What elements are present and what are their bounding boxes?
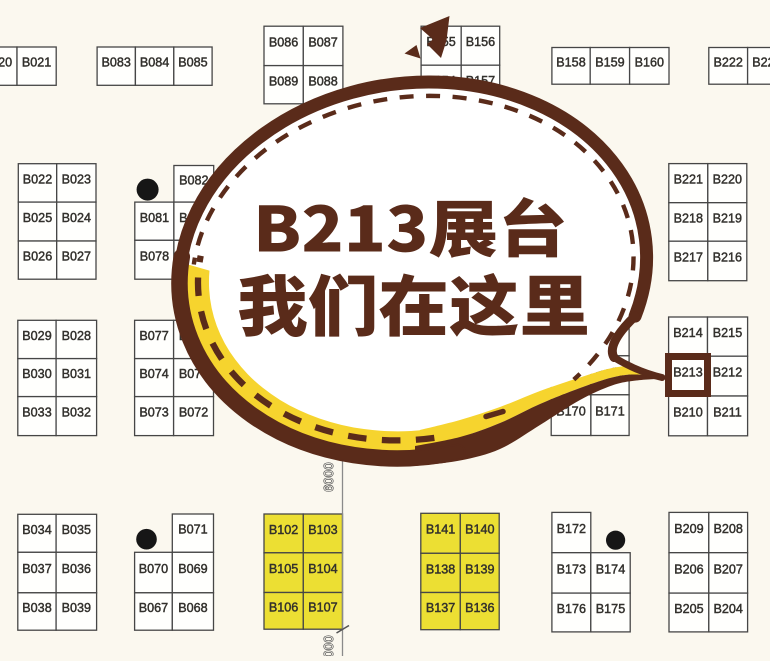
svg-text:B204: B204 — [713, 602, 742, 616]
svg-text:B175: B175 — [596, 602, 625, 616]
svg-text:B025: B025 — [23, 211, 52, 225]
svg-text:B023: B023 — [62, 173, 91, 187]
svg-text:B138: B138 — [426, 562, 455, 576]
svg-text:B209: B209 — [674, 522, 703, 536]
svg-text:B089: B089 — [269, 74, 298, 88]
svg-text:B088: B088 — [308, 74, 337, 88]
svg-text:B083: B083 — [101, 56, 130, 70]
svg-text:B020: B020 — [0, 56, 12, 70]
svg-text:B140: B140 — [465, 523, 494, 537]
svg-text:B159: B159 — [595, 56, 624, 70]
svg-text:B223: B223 — [752, 56, 770, 70]
svg-text:B212: B212 — [713, 366, 742, 380]
svg-text:B206: B206 — [674, 562, 703, 576]
svg-text:B219: B219 — [713, 212, 742, 226]
svg-text:B107: B107 — [308, 601, 337, 615]
svg-text:B176: B176 — [557, 602, 586, 616]
svg-text:B106: B106 — [269, 601, 298, 615]
svg-text:B160: B160 — [635, 56, 664, 70]
svg-text:B039: B039 — [62, 601, 91, 615]
svg-text:B067: B067 — [139, 601, 168, 615]
svg-text:B073: B073 — [139, 406, 168, 420]
svg-text:B103: B103 — [308, 523, 337, 537]
svg-text:B174: B174 — [596, 562, 625, 576]
svg-text:B102: B102 — [269, 523, 298, 537]
svg-text:B026: B026 — [23, 250, 52, 264]
svg-text:B030: B030 — [22, 367, 51, 381]
svg-text:B141: B141 — [426, 523, 455, 537]
svg-text:B214: B214 — [673, 326, 702, 340]
svg-text:B084: B084 — [140, 56, 169, 70]
svg-text:B207: B207 — [713, 562, 742, 576]
svg-text:B215: B215 — [713, 326, 742, 340]
svg-text:B071: B071 — [178, 523, 207, 537]
svg-text:B070: B070 — [139, 562, 168, 576]
svg-text:B081: B081 — [140, 211, 169, 225]
svg-text:B028: B028 — [62, 329, 91, 343]
svg-text:B218: B218 — [674, 212, 703, 226]
svg-text:B216: B216 — [713, 250, 742, 264]
svg-text:6000: 6000 — [322, 635, 336, 656]
svg-text:B139: B139 — [465, 562, 494, 576]
svg-text:B173: B173 — [557, 562, 586, 576]
svg-text:B027: B027 — [62, 250, 91, 264]
svg-text:B034: B034 — [22, 523, 51, 537]
svg-text:B069: B069 — [178, 562, 207, 576]
svg-text:B086: B086 — [269, 35, 298, 49]
svg-text:B221: B221 — [674, 173, 703, 187]
svg-text:B032: B032 — [62, 406, 91, 420]
svg-text:B137: B137 — [426, 601, 455, 615]
svg-text:B213: B213 — [673, 366, 702, 380]
svg-text:B156: B156 — [466, 35, 495, 49]
svg-text:B072: B072 — [179, 406, 208, 420]
svg-text:B021: B021 — [22, 56, 51, 70]
svg-text:B024: B024 — [62, 211, 91, 225]
svg-text:B208: B208 — [713, 522, 742, 536]
svg-text:B220: B220 — [713, 173, 742, 187]
svg-text:B038: B038 — [22, 601, 51, 615]
svg-text:B035: B035 — [62, 523, 91, 537]
svg-text:B210: B210 — [673, 405, 702, 419]
svg-text:B158: B158 — [556, 56, 585, 70]
svg-text:B082: B082 — [179, 174, 208, 188]
svg-text:B078: B078 — [140, 249, 169, 263]
svg-text:B105: B105 — [269, 562, 298, 576]
svg-text:B104: B104 — [308, 562, 337, 576]
svg-text:B068: B068 — [178, 601, 207, 615]
svg-text:B077: B077 — [139, 329, 168, 343]
svg-text:B029: B029 — [22, 329, 51, 343]
svg-text:B036: B036 — [62, 562, 91, 576]
svg-text:B087: B087 — [308, 35, 337, 49]
svg-text:B022: B022 — [23, 173, 52, 187]
svg-text:B037: B037 — [22, 562, 51, 576]
svg-text:B172: B172 — [557, 522, 586, 536]
svg-text:B217: B217 — [674, 250, 703, 264]
svg-text:B171: B171 — [595, 405, 624, 419]
svg-text:B222: B222 — [713, 56, 742, 70]
svg-text:B074: B074 — [139, 367, 168, 381]
svg-text:B085: B085 — [178, 56, 207, 70]
svg-text:6000: 6000 — [322, 462, 336, 492]
svg-text:B205: B205 — [674, 602, 703, 616]
svg-text:B031: B031 — [62, 367, 91, 381]
svg-text:B033: B033 — [22, 406, 51, 420]
svg-text:B136: B136 — [465, 601, 494, 615]
svg-text:B211: B211 — [713, 405, 741, 419]
